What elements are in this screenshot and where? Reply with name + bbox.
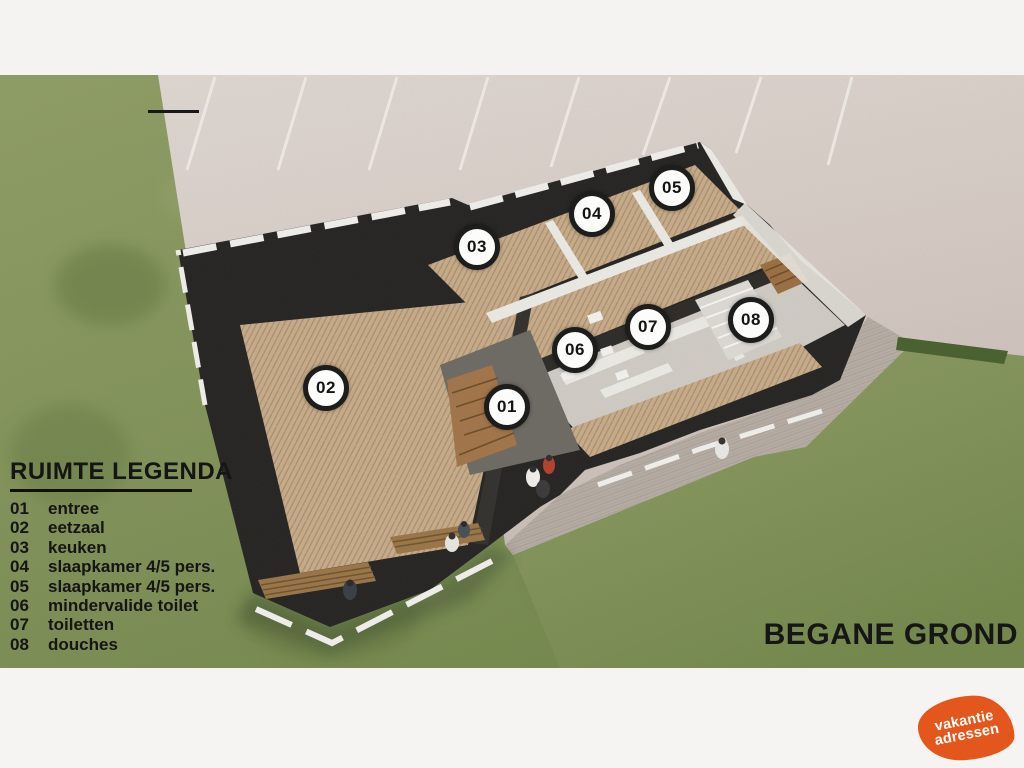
legend-room-number: 07 [10, 615, 40, 634]
legend-row: 05 slaapkamer 4/5 pers. [10, 577, 233, 596]
legend-row: 08 douches [10, 635, 233, 654]
legend-room-label: toiletten [48, 615, 114, 634]
floor-title: BEGANE GROND [758, 618, 1018, 652]
legend-underline [10, 489, 192, 492]
legend-row: 02 eetzaal [10, 518, 233, 537]
legend-title: RUIMTE LEGENDA [10, 458, 233, 486]
room-badge-04: 04 [569, 191, 615, 237]
legend-room-label: keuken [48, 538, 107, 557]
legend-room-label: slaapkamer 4/5 pers. [48, 557, 215, 576]
legend-room-label: mindervalide toilet [48, 596, 198, 615]
room-badge-06: 06 [552, 327, 598, 373]
room-badge-03: 03 [454, 224, 500, 270]
legend-room-number: 06 [10, 596, 40, 615]
rendering-scene: 01 02 03 04 05 06 07 08 RUIMTE LEGENDA 0… [0, 75, 1024, 668]
legend-row: 04 slaapkamer 4/5 pers. [10, 557, 233, 576]
bottom-margin [0, 668, 1024, 768]
legend-room-number: 01 [10, 499, 40, 518]
room-legend: RUIMTE LEGENDA 01 entree 02 eetzaal 03 k… [10, 458, 233, 654]
page: 01 02 03 04 05 06 07 08 RUIMTE LEGENDA 0… [0, 0, 1024, 768]
room-badge-05: 05 [649, 165, 695, 211]
room-badge-08: 08 [728, 297, 774, 343]
room-badge-07: 07 [625, 304, 671, 350]
legend-room-number: 02 [10, 518, 40, 537]
legend-row: 01 entree [10, 499, 233, 518]
legend-row: 06 mindervalide toilet [10, 596, 233, 615]
legend-row: 03 keuken [10, 538, 233, 557]
room-badge-02: 02 [303, 365, 349, 411]
legend-room-number: 03 [10, 538, 40, 557]
legend-room-number: 04 [10, 557, 40, 576]
legend-row: 07 toiletten [10, 615, 233, 634]
legend-room-number: 05 [10, 577, 40, 596]
legend-room-label: entree [48, 499, 99, 518]
legend-room-label: douches [48, 635, 118, 654]
logo-wordmark: vakantie adressen [931, 709, 1000, 748]
legend-room-label: slaapkamer 4/5 pers. [48, 577, 215, 596]
legend-room-number: 08 [10, 635, 40, 654]
top-margin [0, 0, 1024, 75]
legend-room-label: eetzaal [48, 518, 105, 537]
room-badge-01: 01 [484, 384, 530, 430]
